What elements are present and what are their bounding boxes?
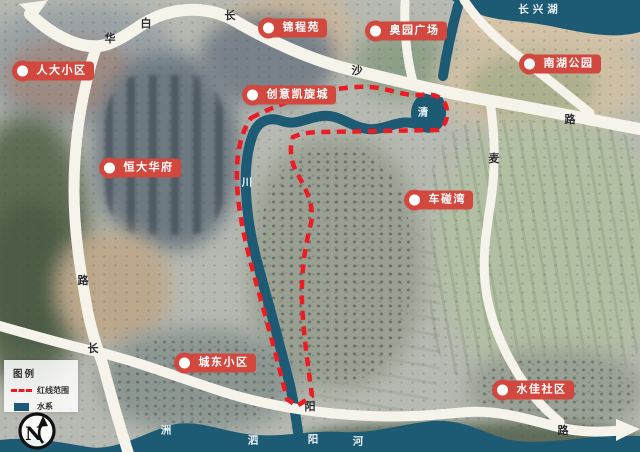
satellite-map: 白华长沙路麦路长阳路长兴湖清川洲泗阳河 人大小区锦程苑奥园广场南湖公园创意凯旋城… (0, 0, 640, 452)
marker-label: 城东小区 (186, 353, 256, 372)
marker-dot-icon (242, 85, 263, 106)
map-marker: 城东小区 (174, 353, 256, 374)
legend-item-label: 红线范围 (37, 385, 69, 396)
map-marker: 奥园广场 (365, 21, 447, 42)
water-swatch-icon (14, 403, 29, 411)
map-marker: 恒大华府 (99, 158, 181, 179)
marker-dot-icon (519, 54, 540, 75)
legend-title: 图例 (13, 366, 73, 380)
marker-dot-icon (404, 190, 425, 211)
marker-label: 南湖公园 (531, 54, 601, 73)
marker-dot-icon (99, 158, 120, 179)
legend-panel: 图例 红线范围 水系 (4, 360, 78, 412)
map-marker: 创意凯旋城 (242, 85, 337, 106)
marker-dot-icon (12, 61, 33, 82)
marker-dot-icon (365, 21, 386, 42)
marker-label: 恒大华府 (111, 158, 181, 177)
marker-label: 人大小区 (24, 61, 94, 80)
map-marker: 水佳社区 (492, 380, 574, 401)
legend-item-redline: 红线范围 (11, 385, 73, 396)
dashed-line-swatch-icon (11, 389, 32, 392)
marker-dot-icon (492, 380, 513, 401)
marker-label: 水佳社区 (504, 380, 574, 399)
north-arrow-icon: N (17, 411, 57, 451)
north-compass: N (17, 411, 57, 451)
marker-dot-icon (258, 18, 279, 39)
map-marker: 车碰湾 (404, 190, 474, 211)
map-marker: 人大小区 (12, 61, 94, 82)
marker-label: 奥园广场 (377, 21, 447, 40)
map-marker: 锦程苑 (258, 18, 328, 39)
marker-label: 创意凯旋城 (254, 85, 337, 104)
poi-marker-layer: 人大小区锦程苑奥园广场南湖公园创意凯旋城恒大华府车碰湾城东小区水佳社区 (0, 0, 640, 452)
marker-dot-icon (174, 353, 195, 374)
map-marker: 南湖公园 (519, 54, 601, 75)
